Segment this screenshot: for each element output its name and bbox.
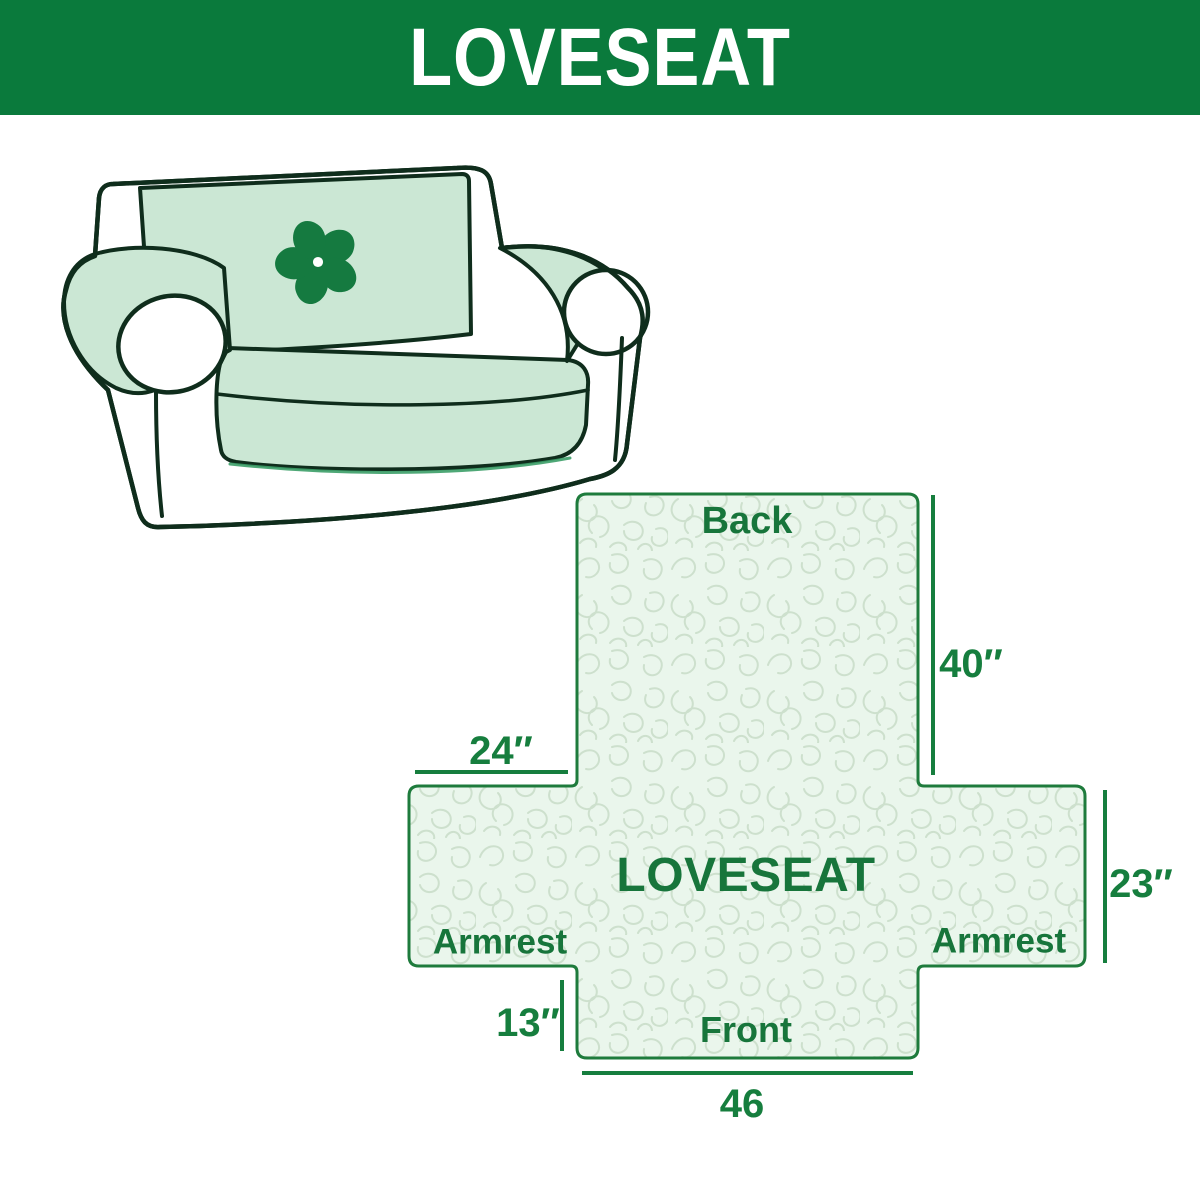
dim-front-height-label: 13″ [496, 1003, 560, 1043]
back-section-label: Back [702, 502, 793, 540]
dim-armrest-height-label: 23″ [1109, 864, 1173, 904]
dim-armrest-width-label: 24″ [469, 731, 533, 771]
page-title: LOVESEAT [409, 17, 791, 99]
dim-back-height-label: 40″ [939, 644, 1003, 684]
cover-shape [409, 494, 1085, 1058]
center-product-label: LOVESEAT [616, 852, 875, 900]
armrest-left-label: Armrest [433, 925, 567, 960]
right-arm-roll [564, 270, 648, 354]
header-banner: LOVESEAT [0, 0, 1200, 115]
sofa-seat-cover [216, 348, 588, 469]
front-section-label: Front [700, 1012, 792, 1048]
page: { "header": { "title": "LOVESEAT", "bg_c… [0, 0, 1200, 1200]
dim-bottom-width-label: 46 [720, 1084, 765, 1124]
armrest-right-label: Armrest [932, 924, 1066, 959]
